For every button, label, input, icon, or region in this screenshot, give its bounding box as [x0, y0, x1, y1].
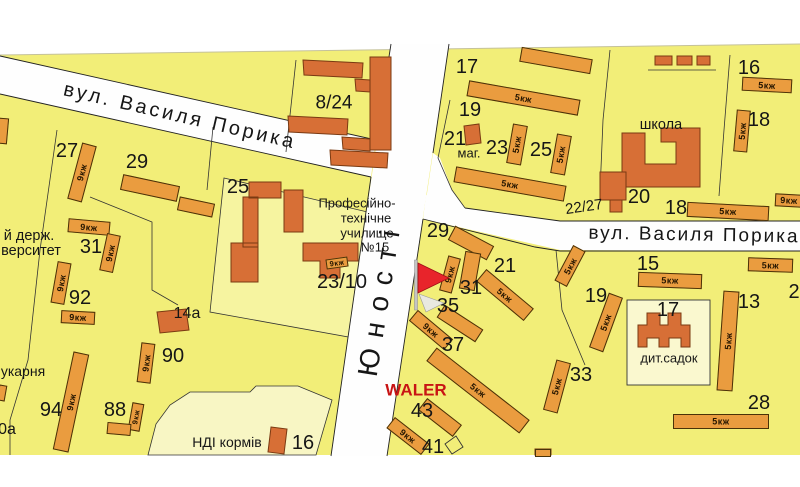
marker-gray-pennant	[419, 294, 444, 312]
map-canvas[interactable]: 9кж9кж9кж9кж9кж9кж9кж9кж9кж5кж5кж5кж5кж5…	[0, 0, 800, 487]
map-marker-flag[interactable]	[0, 0, 800, 487]
marker-pole	[415, 260, 418, 310]
marker-red-pennant	[418, 263, 449, 293]
